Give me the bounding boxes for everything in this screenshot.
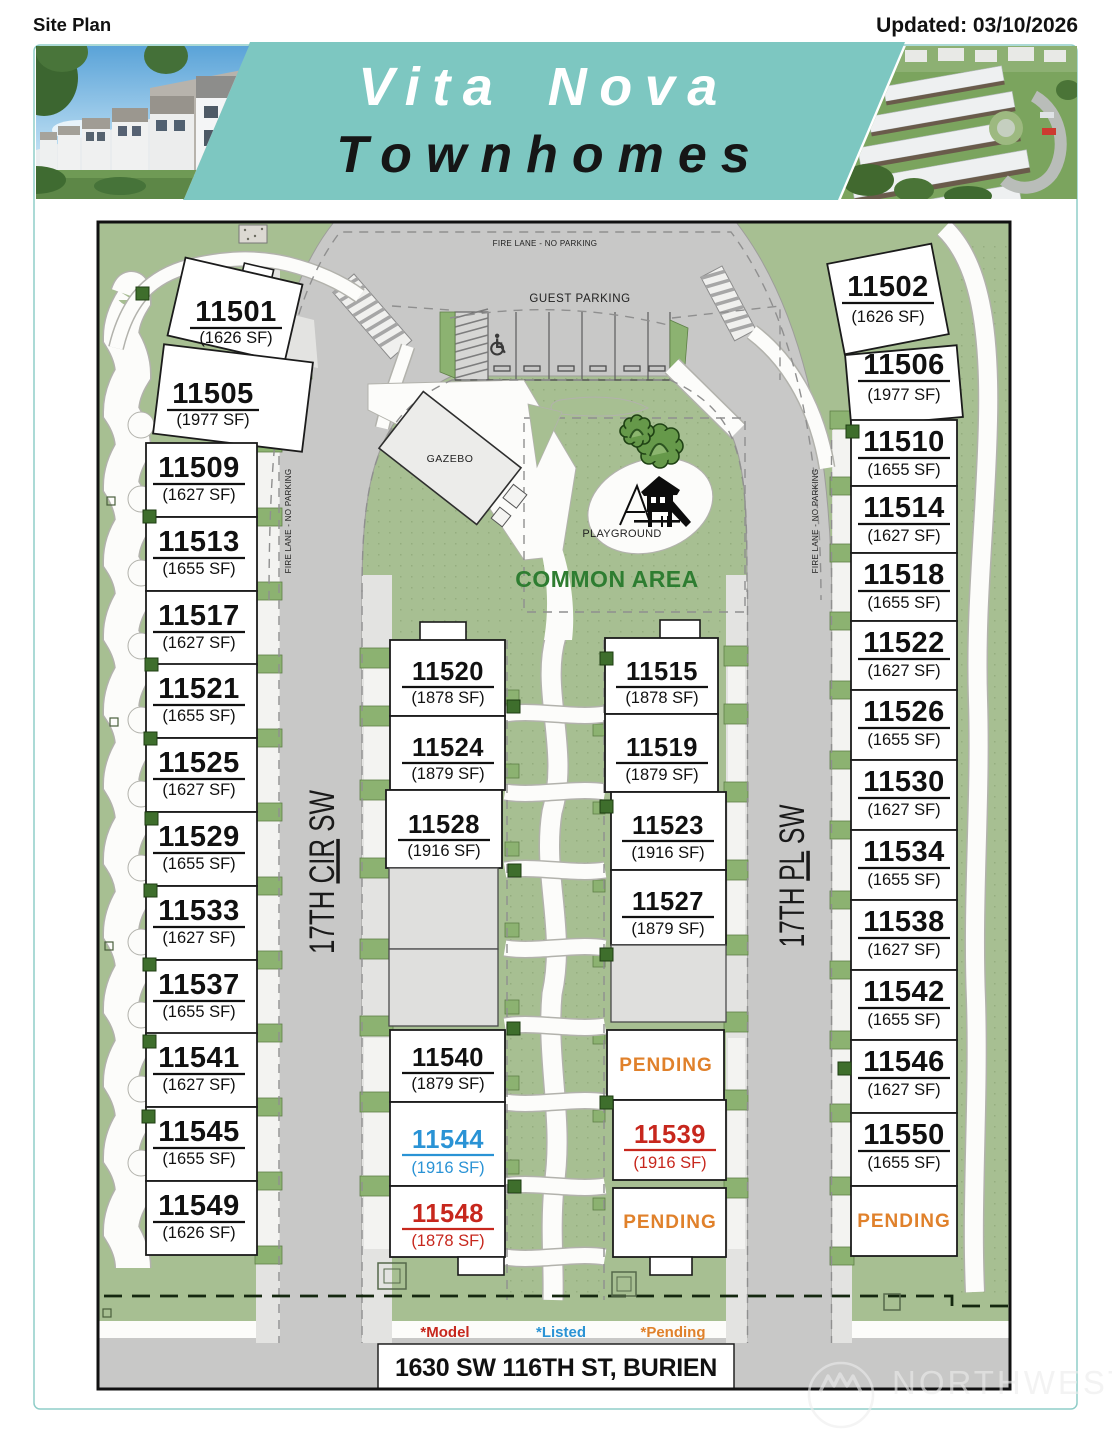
svg-text:11549: 11549 [158,1190,240,1222]
svg-text:17TH CIR SW: 17TH CIR SW [302,790,342,954]
svg-text:11541: 11541 [158,1042,240,1074]
svg-text:11524: 11524 [412,734,484,762]
svg-text:*Pending: *Pending [640,1324,705,1341]
svg-text:11528: 11528 [408,811,480,839]
svg-text:11545: 11545 [158,1116,240,1148]
svg-text:(1626 SF): (1626 SF) [162,1224,235,1242]
svg-text:(1977 SF): (1977 SF) [176,411,249,429]
svg-text:11515: 11515 [626,658,698,686]
svg-text:*Model: *Model [420,1324,469,1341]
svg-text:(1627 SF): (1627 SF) [867,662,940,680]
svg-text:(1878 SF): (1878 SF) [625,689,698,707]
svg-text:(1916 SF): (1916 SF) [407,842,480,860]
svg-text:11542: 11542 [863,976,945,1008]
svg-text:11505: 11505 [172,378,254,410]
svg-text:(1655 SF): (1655 SF) [162,1003,235,1021]
svg-text:(1627 SF): (1627 SF) [162,486,235,504]
svg-text:Vita Nova: Vita Nova [358,57,730,117]
svg-text:(1655 SF): (1655 SF) [162,1150,235,1168]
svg-text:11533: 11533 [158,895,240,927]
svg-text:11544: 11544 [412,1126,484,1154]
svg-text:(1655 SF): (1655 SF) [162,855,235,873]
svg-text:PENDING: PENDING [619,1055,713,1076]
svg-text:11539: 11539 [634,1121,706,1149]
svg-text:1630 SW 116TH ST, BURIEN: 1630 SW 116TH ST, BURIEN [395,1354,717,1382]
svg-text:(1655 SF): (1655 SF) [867,731,940,749]
svg-text:11540: 11540 [412,1044,484,1072]
svg-text:11521: 11521 [158,673,240,705]
svg-text:(1879 SF): (1879 SF) [625,766,698,784]
svg-text:11513: 11513 [158,526,240,558]
svg-text:FIRE LANE - NO PARKING: FIRE LANE - NO PARKING [284,469,293,574]
svg-text:(1627 SF): (1627 SF) [867,801,940,819]
svg-text:(1916 SF): (1916 SF) [633,1154,706,1172]
svg-text:(1627 SF): (1627 SF) [867,941,940,959]
svg-text:NORTHWEST: NORTHWEST [892,1364,1112,1401]
svg-text:11517: 11517 [158,600,240,632]
svg-text:11526: 11526 [863,696,945,728]
svg-text:11537: 11537 [158,969,240,1001]
svg-text:11509: 11509 [158,452,240,484]
svg-text:(1627 SF): (1627 SF) [162,781,235,799]
svg-text:11506: 11506 [863,349,945,381]
svg-text:Townhomes: Townhomes [336,126,763,184]
svg-text:(1626 SF): (1626 SF) [851,308,924,326]
svg-text:11519: 11519 [626,734,698,762]
svg-text:(1916 SF): (1916 SF) [631,844,704,862]
svg-text:(1626 SF): (1626 SF) [199,329,272,347]
svg-text:11548: 11548 [412,1200,484,1228]
svg-text:11550: 11550 [863,1119,945,1151]
svg-text:(1627 SF): (1627 SF) [162,929,235,947]
svg-text:(1879 SF): (1879 SF) [411,765,484,783]
svg-text:11534: 11534 [863,836,945,868]
svg-text:(1655 SF): (1655 SF) [867,871,940,889]
svg-text:Updated: 03/10/2026: Updated: 03/10/2026 [876,14,1078,37]
svg-text:11529: 11529 [158,821,240,853]
svg-text:11502: 11502 [847,271,929,303]
svg-text:(1878 SF): (1878 SF) [411,689,484,707]
svg-text:FIRE LANE - NO PARKING: FIRE LANE - NO PARKING [493,239,598,248]
svg-text:PLAYGROUND: PLAYGROUND [582,528,661,540]
svg-text:(1977 SF): (1977 SF) [867,386,940,404]
svg-text:(1655 SF): (1655 SF) [867,1011,940,1029]
svg-text:(1627 SF): (1627 SF) [162,634,235,652]
svg-text:11546: 11546 [863,1046,945,1078]
svg-text:17TH PL SW: 17TH PL SW [774,804,812,947]
svg-text:11520: 11520 [412,658,484,686]
svg-text:11514: 11514 [863,492,945,524]
svg-text:(1916 SF): (1916 SF) [411,1159,484,1177]
svg-text:(1627 SF): (1627 SF) [867,527,940,545]
svg-text:Site Plan: Site Plan [33,14,111,35]
svg-text:11510: 11510 [863,426,945,458]
svg-text:(1655 SF): (1655 SF) [867,594,940,612]
svg-text:11501: 11501 [195,296,277,328]
svg-text:PENDING: PENDING [857,1211,951,1232]
svg-text:11518: 11518 [863,559,945,591]
svg-text:11527: 11527 [632,888,704,916]
svg-text:COMMON AREA: COMMON AREA [515,566,699,592]
svg-text:(1879 SF): (1879 SF) [631,920,704,938]
svg-text:(1655 SF): (1655 SF) [162,707,235,725]
svg-text:11523: 11523 [632,812,704,840]
svg-text:PENDING: PENDING [623,1212,717,1233]
svg-text:(1655 SF): (1655 SF) [867,461,940,479]
svg-text:(1879 SF): (1879 SF) [411,1075,484,1093]
svg-text:11538: 11538 [863,906,945,938]
svg-text:(1655 SF): (1655 SF) [162,560,235,578]
svg-text:(1878 SF): (1878 SF) [411,1232,484,1250]
svg-text:(1627 SF): (1627 SF) [162,1076,235,1094]
svg-text:FIRE LANE - NO PARKING: FIRE LANE - NO PARKING [811,469,820,574]
svg-text:11522: 11522 [863,627,945,659]
svg-text:GAZEBO: GAZEBO [427,453,474,465]
svg-text:11525: 11525 [158,747,240,779]
svg-text:(1655 SF): (1655 SF) [867,1154,940,1172]
svg-text:GUEST PARKING: GUEST PARKING [529,293,630,305]
svg-text:11530: 11530 [863,766,945,798]
svg-text:*Listed: *Listed [536,1324,586,1341]
svg-text:(1627 SF): (1627 SF) [867,1081,940,1099]
